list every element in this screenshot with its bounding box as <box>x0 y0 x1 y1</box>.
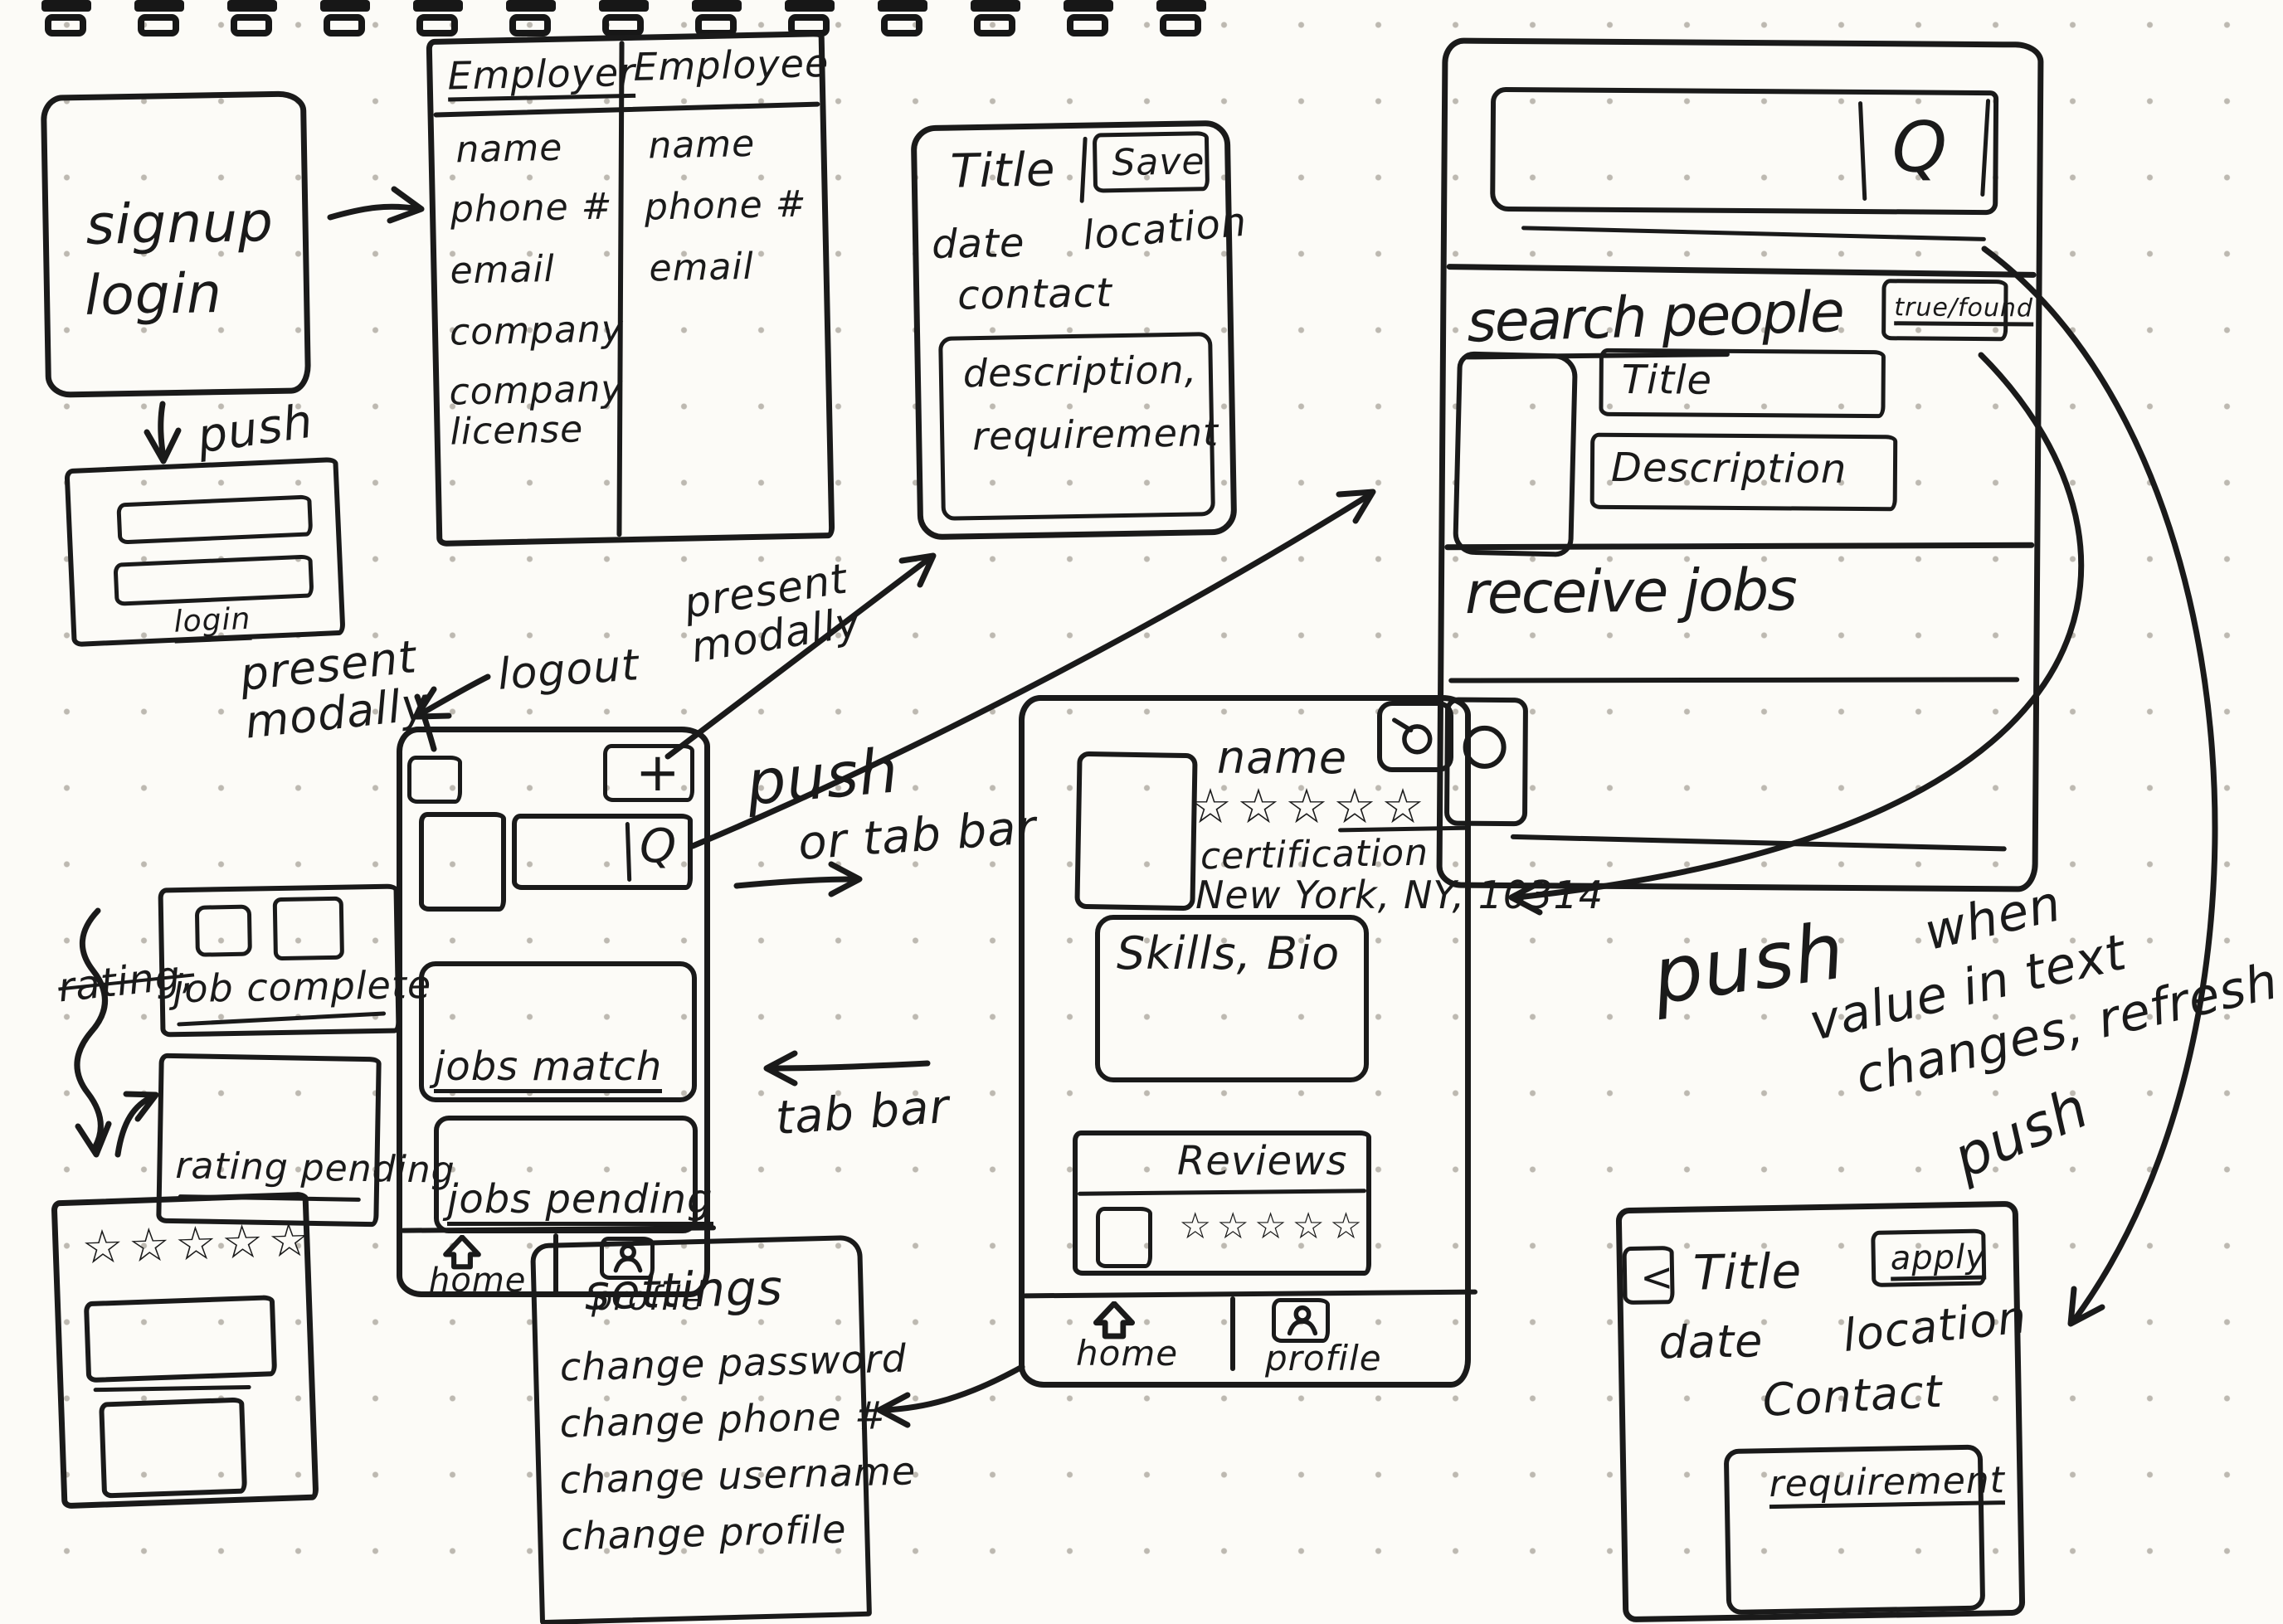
present-modally-annotation-2: present modally <box>681 551 892 670</box>
job-description-textarea[interactable]: description, requirement <box>938 332 1215 521</box>
receive-jobs-heading: receive jobs <box>1465 559 1797 625</box>
party-avatar <box>195 905 252 957</box>
tabbar-divider <box>1023 1290 1477 1299</box>
apply-button[interactable]: apply <box>1871 1228 1986 1286</box>
result-title-field[interactable]: Title <box>1599 348 1886 418</box>
profile-icon <box>1284 1304 1321 1337</box>
list-row-divider[interactable] <box>1511 834 2007 852</box>
party-avatar <box>273 897 344 960</box>
requirement-label: requirement <box>1769 1461 2005 1508</box>
profile-name: name <box>1217 734 1347 782</box>
rating-pending-label: rating pending <box>175 1146 455 1190</box>
section-divider <box>1444 542 2034 550</box>
job-date-label: date <box>1658 1317 1764 1367</box>
profile-screen: name ☆☆☆☆☆ certification New York, NY, 1… <box>1019 695 1471 1388</box>
home-search-input[interactable]: Q <box>512 814 693 890</box>
spiral-binding-ring <box>1059 0 1117 41</box>
requirement-label: requirement <box>972 412 1219 458</box>
home-screen: + Q jobs match jobs pending home profile <box>397 727 710 1297</box>
search-divider <box>1858 101 1867 201</box>
auth-screen: signup login <box>41 90 311 398</box>
location-field-label[interactable]: location <box>1081 202 1249 259</box>
sketch-page: signup login push login present modally … <box>0 0 2283 1624</box>
description-label: description, <box>962 349 1197 395</box>
login-modal: login <box>64 457 345 647</box>
search-divider <box>1980 99 1990 197</box>
profile-avatar <box>1074 751 1197 912</box>
table-header-divider <box>433 102 820 118</box>
list-row-divider[interactable] <box>1448 677 2019 683</box>
settings-item-change-password[interactable]: change password <box>559 1338 907 1388</box>
employer-field: name <box>455 129 563 170</box>
spiral-binding-ring <box>130 0 188 41</box>
column-header-employer: Employer <box>447 52 636 101</box>
settings-title: settings <box>584 1262 784 1319</box>
password-field[interactable] <box>113 554 314 605</box>
certification-label: certification <box>1200 834 1429 877</box>
profile-icon-box <box>1272 1298 1330 1343</box>
sketch-stroke <box>94 1385 251 1392</box>
employee-field: name <box>648 124 756 166</box>
back-chevron: < <box>1640 1257 1675 1301</box>
plus-icon: + <box>635 745 681 802</box>
job-title-label: Title <box>1693 1245 1803 1299</box>
present-modally-annotation: present modally <box>238 630 455 747</box>
filter-toggle-label: true/found <box>1894 294 2033 327</box>
login-button[interactable]: login <box>84 264 222 325</box>
settings-item-change-phone[interactable]: change phone # <box>559 1395 888 1445</box>
skills-bio-card[interactable]: Skills, Bio <box>1095 915 1369 1082</box>
settings-item-change-username[interactable]: change username <box>559 1451 917 1501</box>
camera-icon <box>1387 711 1442 762</box>
requirement-box: requirement <box>1724 1445 1985 1615</box>
filter-toggle-button[interactable]: true/found <box>1881 279 2008 341</box>
login-submit-button[interactable]: login <box>173 604 252 644</box>
spiral-binding-ring <box>1152 0 1210 41</box>
save-button[interactable]: Save <box>1093 131 1210 192</box>
apply-button-label: apply <box>1890 1239 1986 1281</box>
job-complete-card[interactable]: job complete <box>158 883 401 1037</box>
profile-location: New York, NY, 10314 <box>1195 875 1604 917</box>
reviews-divider <box>1078 1189 1366 1196</box>
reviews-title: Reviews <box>1177 1140 1347 1184</box>
jobs-pending-card[interactable]: jobs pending <box>434 1116 698 1233</box>
job-contact-label: Contact <box>1761 1368 1944 1426</box>
reviews-card[interactable]: Reviews ☆☆☆☆☆ <box>1073 1130 1371 1276</box>
tabbar-vertical-divider <box>1230 1296 1235 1371</box>
push-or-tabbar-annotation: push <box>744 738 902 818</box>
nav-corner-box[interactable] <box>407 756 462 804</box>
tab-home[interactable]: home <box>429 1263 526 1299</box>
jobs-match-card[interactable]: jobs match <box>419 961 697 1102</box>
push-annotation: push <box>194 397 316 463</box>
column-header-employee: Employee <box>633 43 830 89</box>
job-detail-screen: < Title apply date location Contact requ… <box>1616 1201 2026 1622</box>
search-icon: Q <box>1891 109 1948 185</box>
employer-field: company license <box>449 370 608 452</box>
result-description-field[interactable]: Description <box>1590 433 1898 512</box>
review-stars: ☆☆☆☆☆ <box>1179 1207 1367 1247</box>
result-description-label: Description <box>1611 447 1847 492</box>
signup-fields-table: Employer Employee name phone # email com… <box>426 31 835 547</box>
employer-field: phone # <box>450 187 612 230</box>
profile-thumbnail <box>419 812 506 912</box>
back-button[interactable]: < <box>1622 1246 1674 1305</box>
result-title-label: Title <box>1622 359 1713 403</box>
search-icon: Q <box>640 822 677 872</box>
spiral-binding-ring <box>316 0 374 41</box>
date-field-label[interactable]: date <box>932 222 1025 267</box>
logout-annotation: logout <box>496 642 640 698</box>
tab-bar-annotation: tab bar <box>774 1082 951 1145</box>
job-post-title-label: Title <box>950 145 1056 197</box>
employee-field: phone # <box>644 185 806 228</box>
spiral-binding-ring <box>502 0 560 41</box>
jobs-pending-label: jobs pending <box>447 1179 713 1226</box>
push-annotation-curve: push <box>1945 1077 2097 1190</box>
add-job-button[interactable]: + <box>603 744 694 802</box>
camera-button[interactable] <box>1377 701 1453 772</box>
spiral-binding-ring <box>409 0 467 41</box>
section-divider <box>1447 264 2037 278</box>
tab-home[interactable]: home <box>1076 1335 1178 1372</box>
tab-profile[interactable]: profile <box>1265 1340 1382 1377</box>
comment-field[interactable] <box>84 1295 277 1383</box>
employer-field: company <box>450 309 625 353</box>
spiral-binding-ring <box>223 0 281 41</box>
comment-field-2[interactable] <box>99 1398 247 1499</box>
rating-stars-input[interactable]: ☆☆☆☆☆ <box>81 1215 316 1273</box>
username-field[interactable] <box>116 494 313 544</box>
push-or-tabbar-annotation-2: or tab bar <box>796 803 1038 869</box>
title-save-divider <box>1080 137 1088 203</box>
rating-screen: ☆☆☆☆☆ <box>51 1192 319 1510</box>
save-button-label: Save <box>1112 142 1205 182</box>
profile-rating-stars: ☆☆☆☆☆ <box>1189 780 1429 833</box>
job-location-label: location <box>1841 1293 2029 1360</box>
settings-screen: settings change password change phone # … <box>530 1235 872 1624</box>
search-screen: Q search people true/found Title Descrip… <box>1436 37 2043 892</box>
job-post-modal: Title Save date location contact descrip… <box>911 120 1238 541</box>
settings-item-change-profile[interactable]: change profile <box>561 1509 847 1558</box>
spiral-binding-ring <box>37 0 95 41</box>
employee-field: email <box>649 247 754 289</box>
skills-bio-label: Skills, Bio <box>1117 930 1340 978</box>
review-avatar <box>1096 1207 1152 1268</box>
search-divider <box>626 822 632 882</box>
spiral-binding-ring <box>874 0 932 41</box>
result-thumbnail <box>1453 351 1578 557</box>
sketch-stroke <box>1521 226 1986 241</box>
search-people-heading: search people <box>1466 282 1843 353</box>
search-input[interactable]: Q <box>1490 87 1998 215</box>
contact-field-label[interactable]: contact <box>957 272 1113 318</box>
employer-field: email <box>450 250 555 291</box>
label-underline <box>177 1011 386 1026</box>
job-complete-label: job complete <box>173 965 431 1010</box>
table-column-divider <box>616 41 624 537</box>
signup-button[interactable]: signup <box>85 192 274 255</box>
jobs-match-label: jobs match <box>434 1046 662 1093</box>
spiral-binding-ring <box>966 0 1025 41</box>
